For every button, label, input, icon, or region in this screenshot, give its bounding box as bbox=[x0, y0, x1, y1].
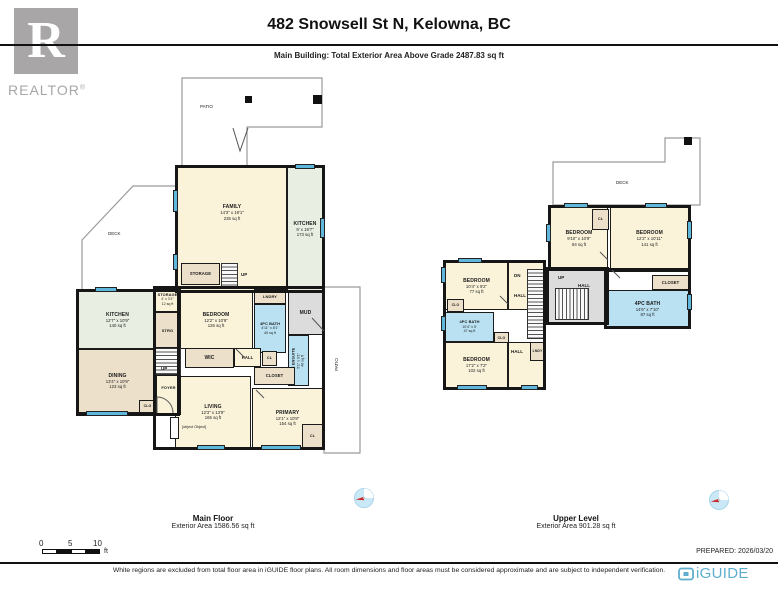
up-label-center: UP bbox=[161, 366, 167, 371]
stairs-center-main bbox=[154, 348, 181, 375]
scale-segment bbox=[71, 549, 86, 554]
window bbox=[173, 190, 178, 212]
deck-label-upper: DECK bbox=[616, 180, 629, 185]
stairs-family bbox=[221, 263, 238, 289]
window bbox=[521, 385, 538, 390]
room-foyer: FOYER bbox=[156, 375, 181, 415]
window bbox=[320, 218, 325, 238]
iguide-logo: iGUIDE bbox=[678, 565, 749, 582]
floorplan-page: R REALTOR® 482 Snowsell St N, Kelowna, B… bbox=[0, 0, 778, 600]
patio-label: PATIO bbox=[200, 104, 213, 109]
scale-unit: ft bbox=[104, 548, 108, 555]
window bbox=[687, 221, 692, 239]
window bbox=[86, 411, 128, 416]
room-strg: STRG bbox=[154, 312, 181, 348]
window bbox=[95, 287, 117, 292]
patio-post bbox=[313, 95, 322, 104]
hall-label-bottom: HALL bbox=[511, 349, 523, 354]
scale-segment bbox=[42, 549, 57, 554]
window bbox=[261, 445, 301, 450]
title-divider bbox=[0, 44, 778, 46]
scale-tick-10: 10 bbox=[93, 539, 102, 548]
stairs-upper-dn bbox=[527, 269, 544, 339]
compass-icon bbox=[353, 487, 375, 509]
main-floor-caption: Main Floor Exterior Area 1586.56 sq ft bbox=[123, 514, 303, 530]
iguide-wordmark: iGUIDE bbox=[696, 565, 749, 582]
window bbox=[441, 267, 446, 283]
compass-icon bbox=[708, 489, 730, 511]
room-lndy: LNDY bbox=[530, 342, 545, 361]
room-bath-upper-left: 4PC BATH 10'4" x 5' 47 sq ft bbox=[445, 312, 494, 342]
room-kitchen: KITCHEN 9' x 19'7" 173 sq ft bbox=[287, 167, 323, 291]
room-bedroom-upper-right: BEDROOM 12'2" x 10'11" 141 sq ft bbox=[610, 207, 689, 270]
room-storage-top: STORAGE bbox=[181, 263, 220, 285]
room-lndry: LNDRY bbox=[254, 289, 286, 304]
room-wic: WIC bbox=[185, 348, 234, 368]
room-bath-upper-right: 4PC BATH 14'6" x 7'10" 87 sq ft bbox=[606, 290, 689, 328]
room-kitchen-left: KITCHEN 12'7" x 10'9" 140 sq ft bbox=[78, 291, 157, 349]
room-closet-upper: CLOSET bbox=[652, 275, 689, 290]
hall-label-center: HALL bbox=[578, 283, 590, 288]
room-hall-main: HALL bbox=[234, 348, 261, 367]
realtor-logo-text: REALTOR® bbox=[8, 82, 108, 98]
up-label-upper: UP bbox=[558, 275, 564, 280]
prepared-date: PREPARED: 2026/03/20 bbox=[560, 548, 773, 555]
room-living: LIVING 12'3" x 13'9" 165 sq ft bbox=[175, 376, 251, 448]
room-bedroom: BEDROOM 12'2" x 10'9" 126 sq ft bbox=[179, 291, 253, 349]
deck-post bbox=[684, 137, 692, 145]
patio-side-label: PATIO bbox=[334, 358, 339, 371]
room-clo-foyer: CLO bbox=[139, 400, 156, 413]
scale-tick-0: 0 bbox=[39, 539, 43, 548]
disclaimer-text: White regions are excluded from total fl… bbox=[0, 567, 778, 574]
room-clo-upper-1: CLO bbox=[447, 299, 464, 312]
room-cl-primary: CL bbox=[302, 424, 323, 448]
scale-bar bbox=[42, 549, 100, 554]
hall-label-left: HALL bbox=[514, 293, 526, 298]
iguide-icon bbox=[678, 567, 694, 581]
scale-tick-5: 5 bbox=[68, 539, 72, 548]
window bbox=[645, 203, 667, 208]
upper-level-caption: Upper Level Exterior Area 901.28 sq ft bbox=[486, 514, 666, 530]
patio-post bbox=[245, 96, 252, 103]
room-storage-small: STORAGE 4' x 3'1" 12 sq ft bbox=[154, 287, 181, 312]
dn-label: DN bbox=[514, 273, 521, 278]
room-cl-hall: CL bbox=[262, 351, 277, 366]
scale-segment bbox=[57, 549, 72, 554]
fp-label: [object Object] bbox=[182, 425, 206, 429]
window bbox=[546, 224, 551, 242]
window bbox=[197, 445, 225, 450]
deck-label-main: DECK bbox=[108, 231, 121, 236]
window bbox=[295, 164, 315, 169]
window bbox=[441, 316, 446, 331]
room-cl-upper: CL bbox=[592, 209, 609, 230]
stairs-upper-hall bbox=[555, 288, 589, 320]
window bbox=[457, 385, 487, 390]
window bbox=[458, 258, 482, 263]
up-label-family: UP bbox=[241, 272, 247, 277]
window bbox=[564, 203, 588, 208]
scale-segment bbox=[86, 549, 101, 554]
room-closet-primary: CLOSET bbox=[254, 367, 295, 385]
footer-divider bbox=[0, 562, 778, 564]
registered-mark: ® bbox=[80, 84, 86, 91]
page-subtitle: Main Building: Total Exterior Area Above… bbox=[0, 51, 778, 60]
room-mud: MUD bbox=[288, 291, 323, 335]
page-title: 482 Snowsell St N, Kelowna, BC bbox=[0, 16, 778, 34]
room-bedroom-upper-bottom: BEDROOM 17'2" x 7'2" 102 sq ft bbox=[445, 342, 508, 388]
room-bath-main: 4PC BATH 4'11" x 8'1" 40 sq ft bbox=[254, 304, 286, 353]
window bbox=[687, 294, 692, 310]
window bbox=[173, 254, 178, 270]
fireplace bbox=[170, 417, 179, 439]
